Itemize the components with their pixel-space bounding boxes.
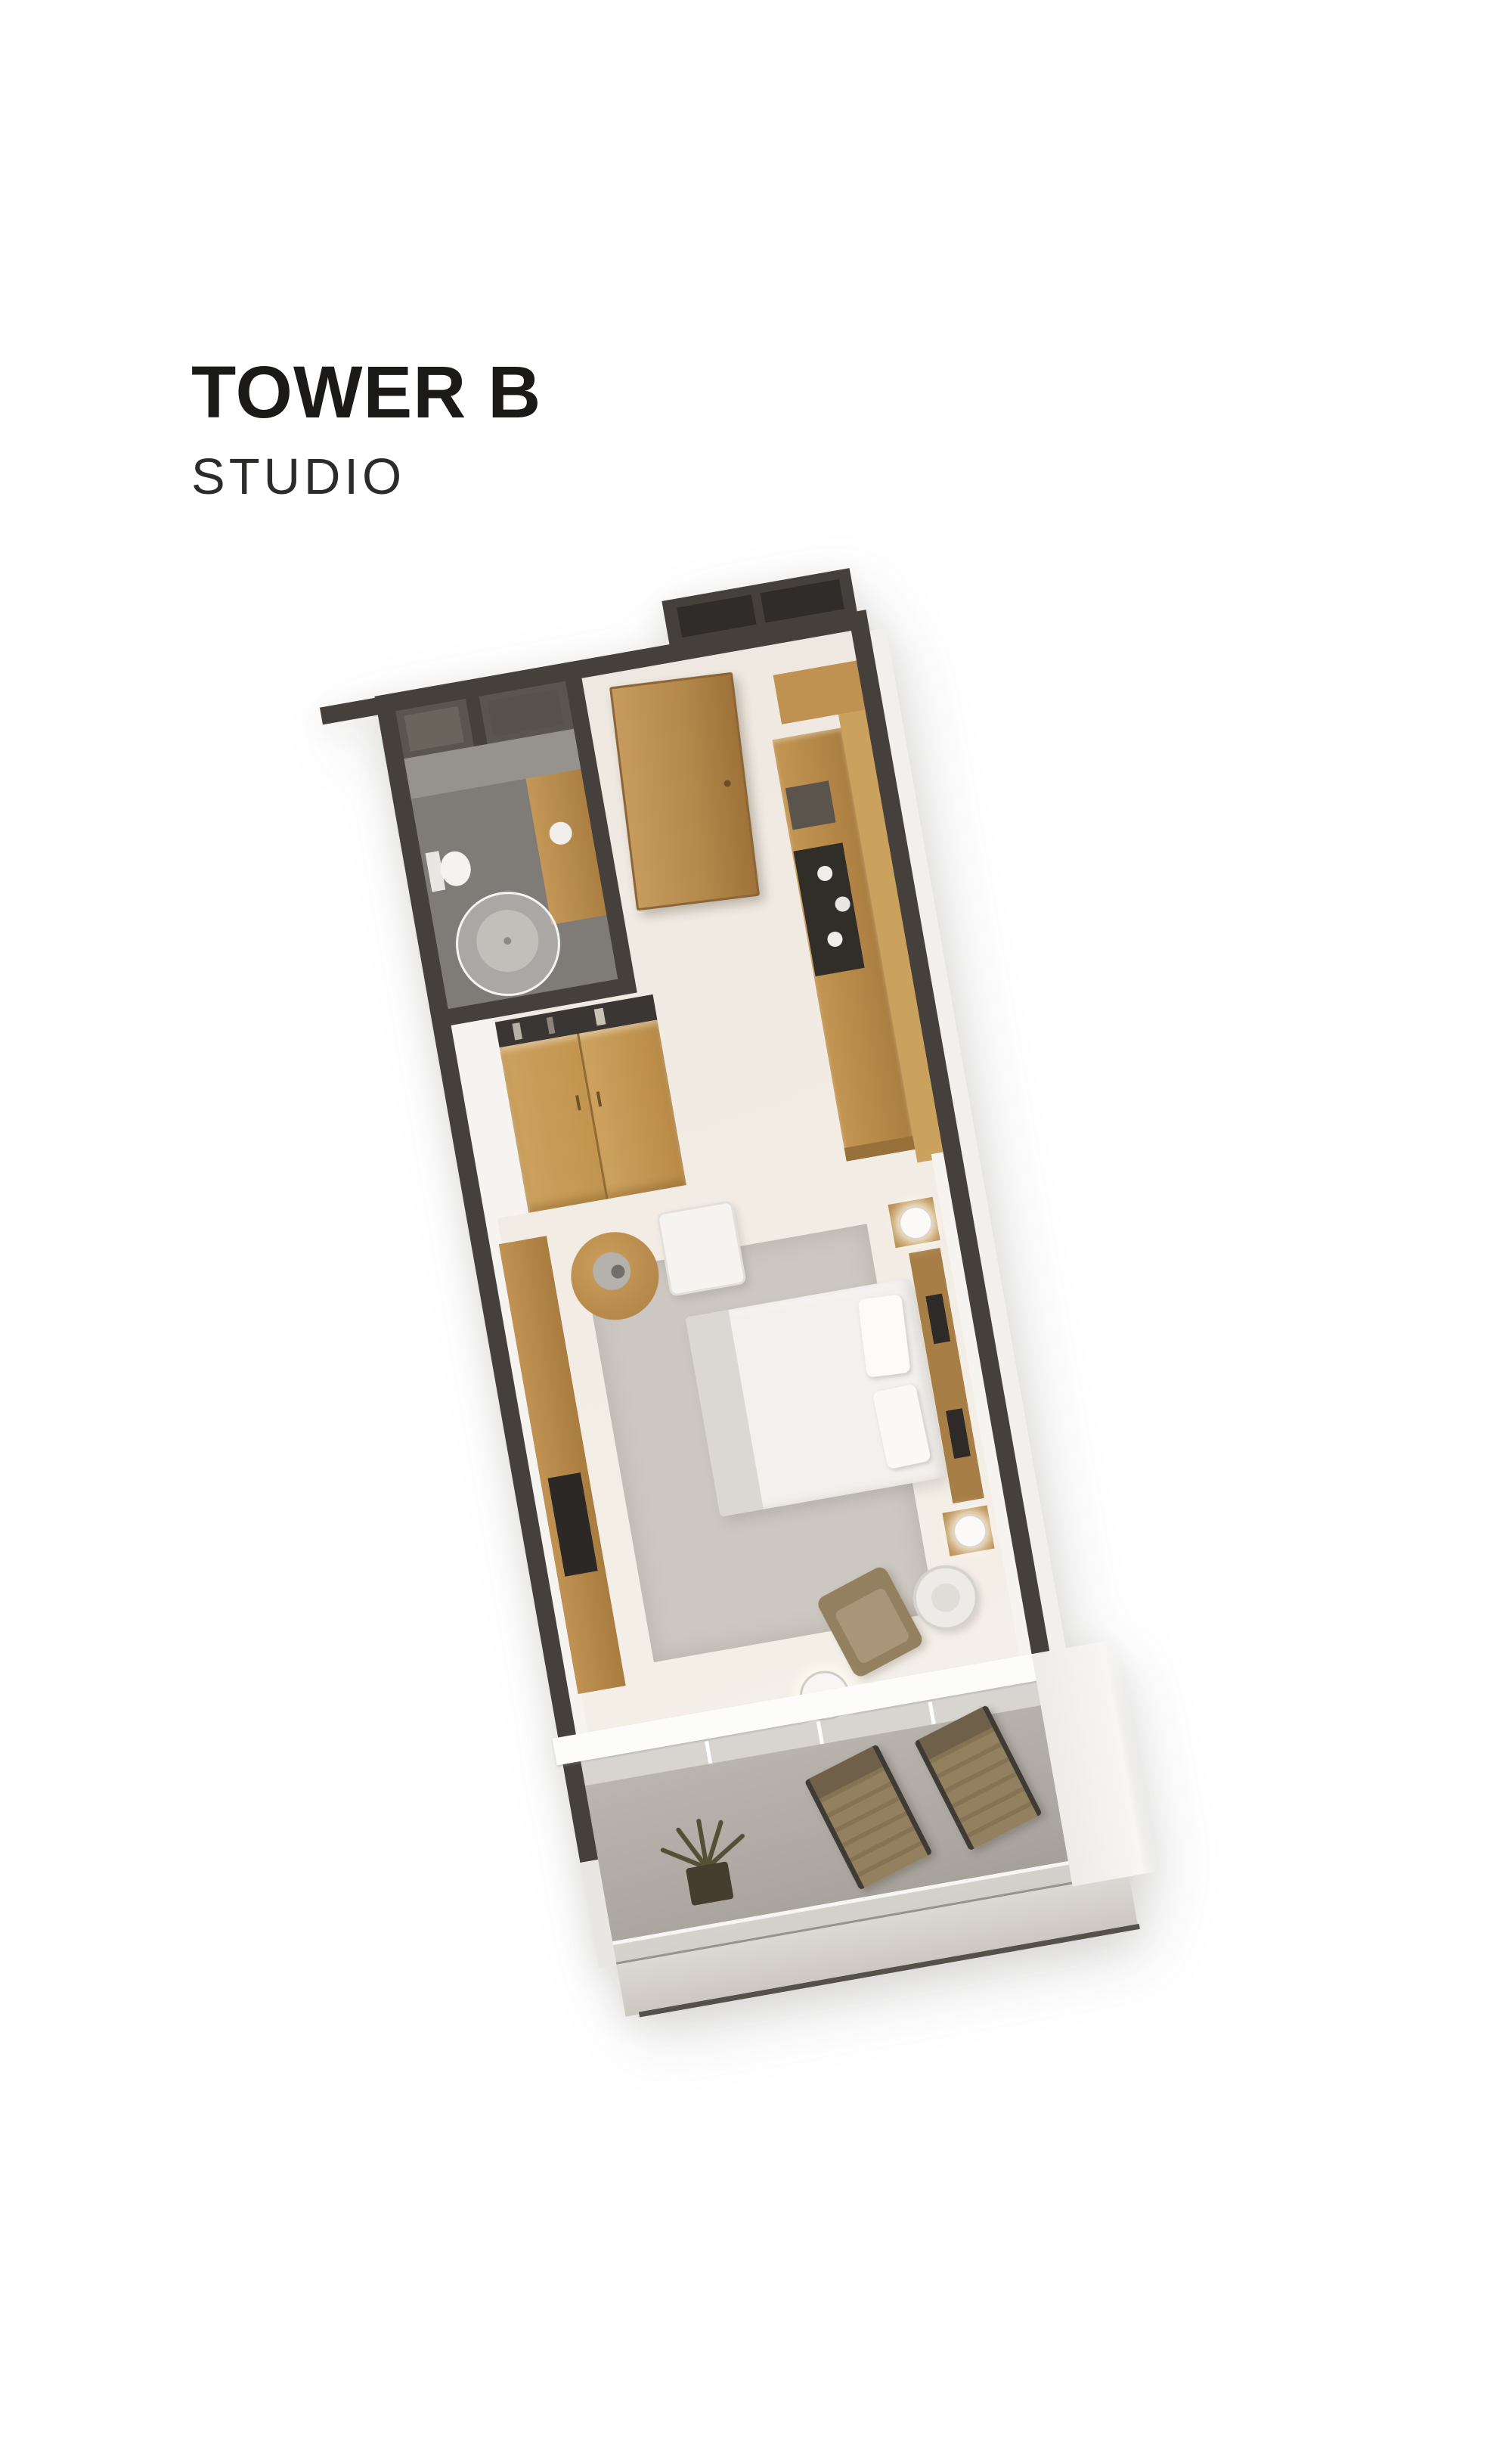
kitchen-appliance [785, 780, 836, 830]
floorplan-3d-render [374, 610, 1099, 2022]
pillow [872, 1384, 931, 1470]
wall-stub [320, 697, 380, 724]
page-title: TOWER B [191, 354, 541, 431]
plant-pot [686, 1861, 734, 1906]
bench-chair [656, 1200, 747, 1297]
page: TOWER B STUDIO [0, 0, 1512, 2454]
plan-header: TOWER B STUDIO [191, 354, 541, 506]
pillow [857, 1294, 910, 1377]
page-subtitle: STUDIO [191, 448, 541, 506]
door-handle [723, 780, 731, 787]
armchair-cushion [834, 1587, 911, 1665]
bed [685, 1278, 945, 1517]
